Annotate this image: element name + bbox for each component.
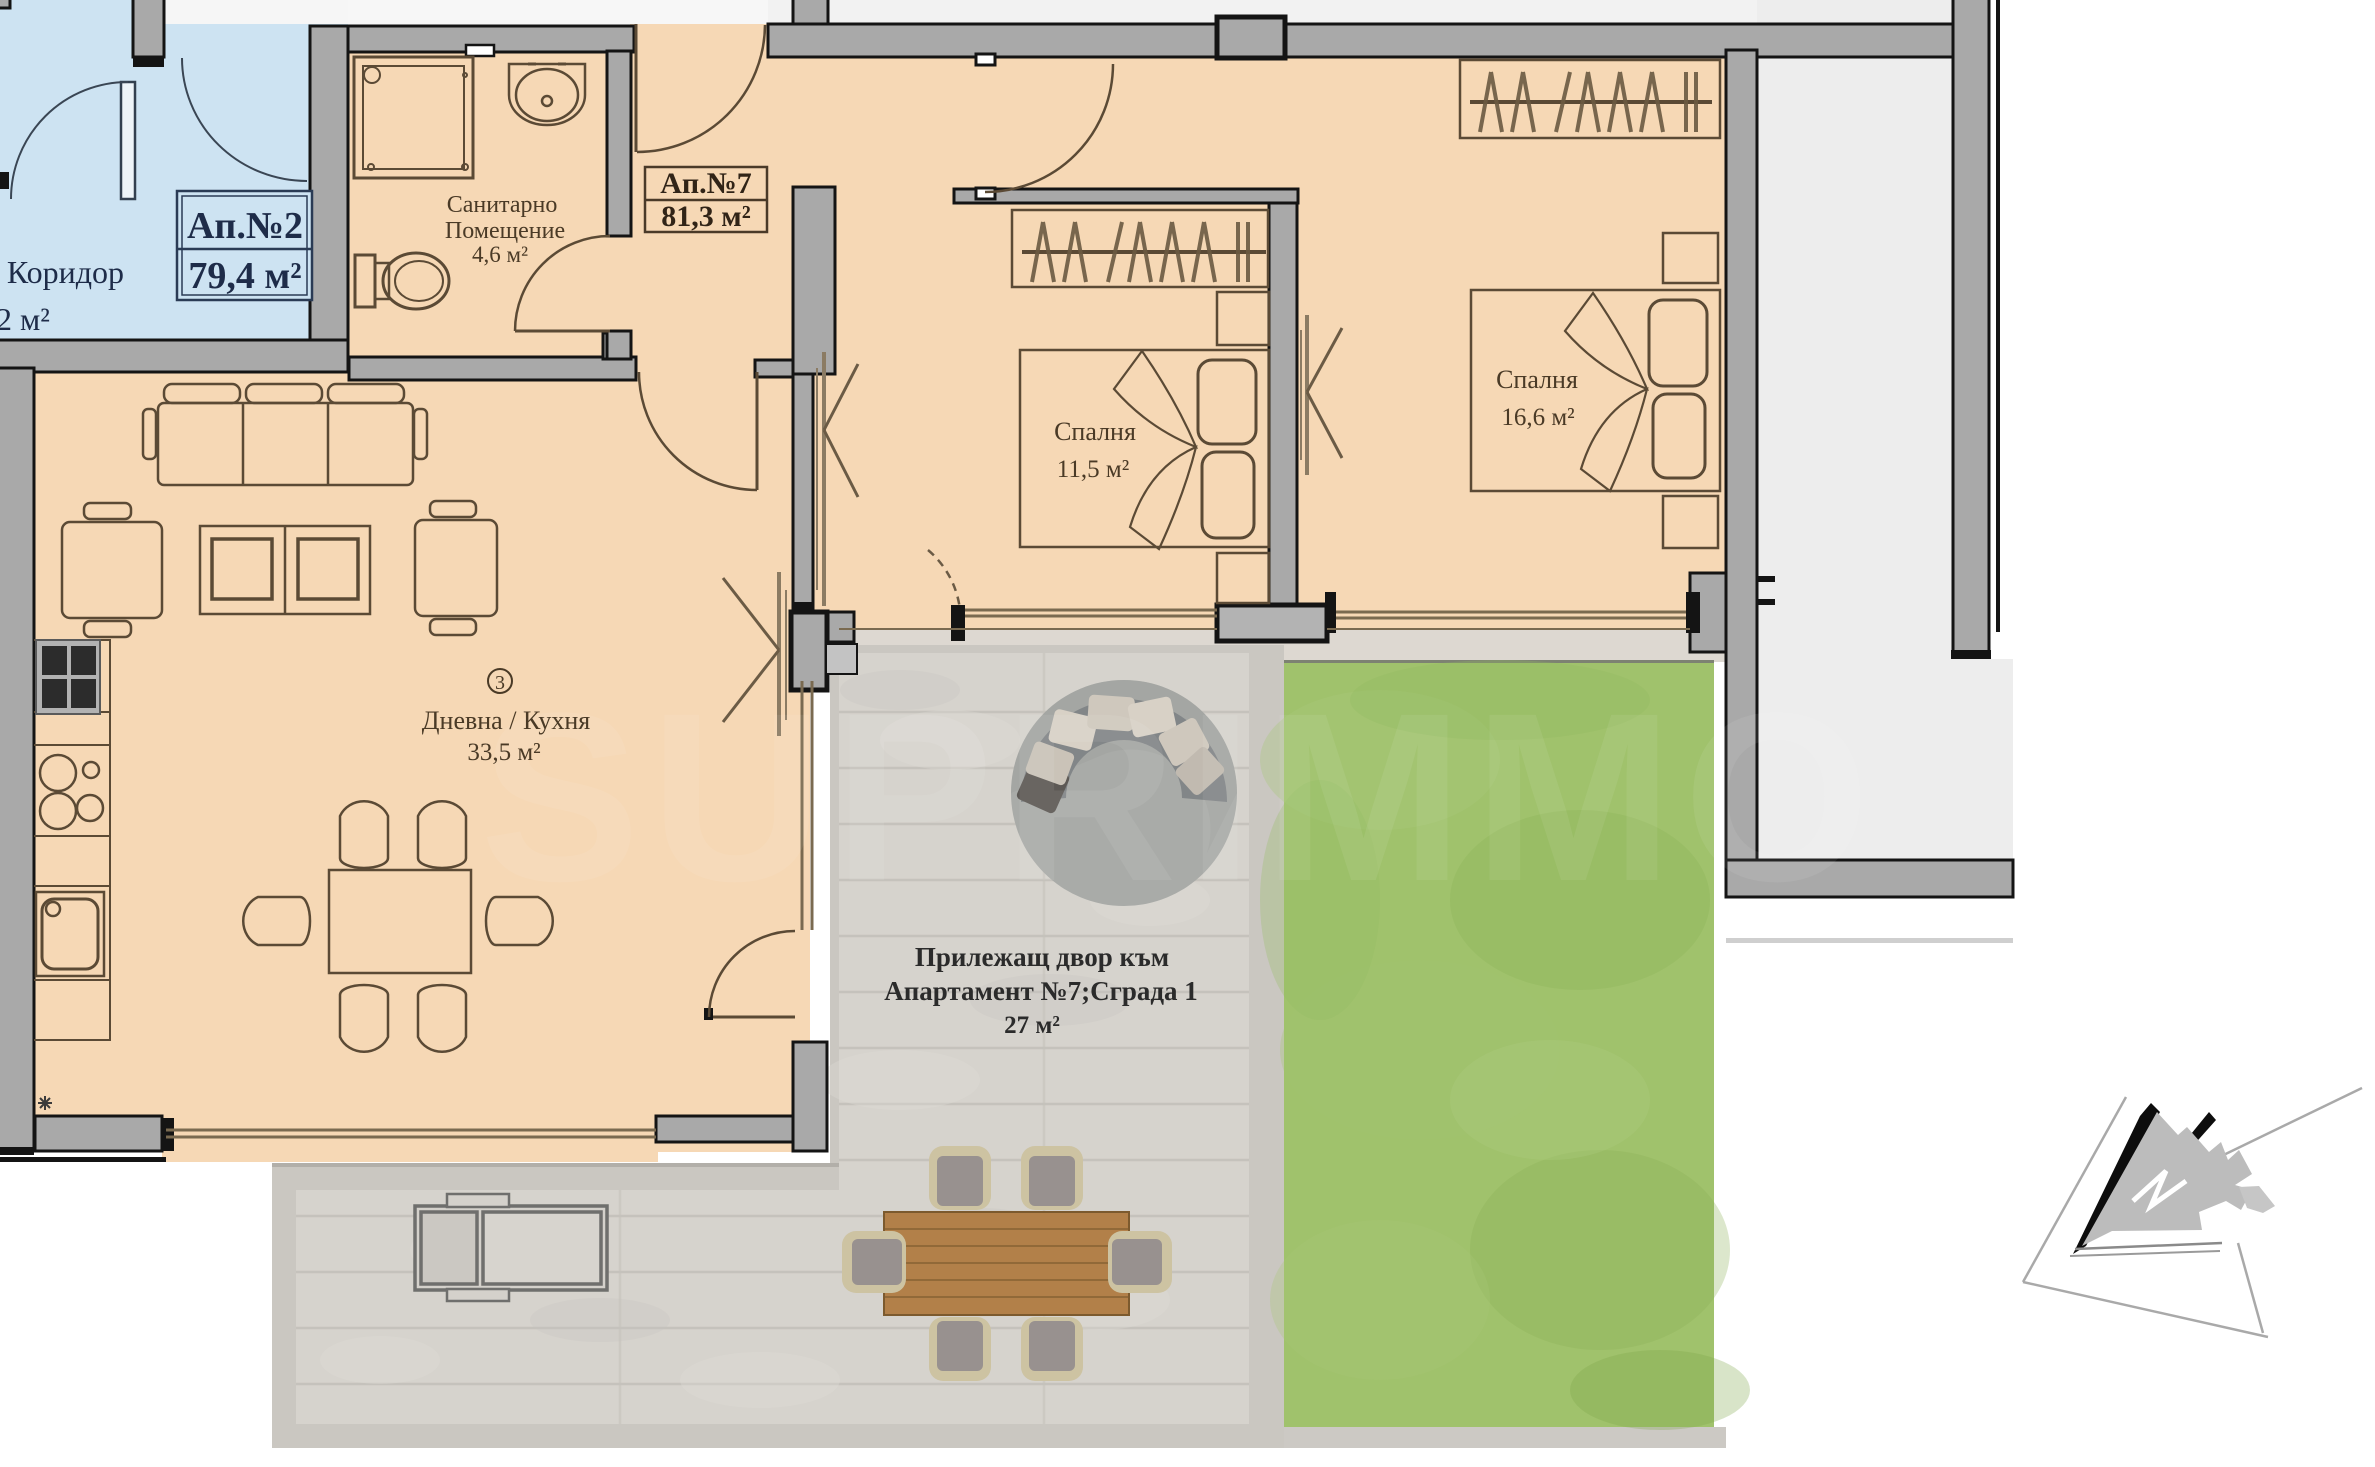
svg-text:Прилежащ двор към: Прилежащ двор към [915,942,1169,972]
svg-text:81,3 м²: 81,3 м² [661,200,750,233]
svg-text:33,5 м²: 33,5 м² [467,739,540,766]
svg-text:Санитарно: Санитарно [447,192,558,218]
svg-text:Апартамент №7;Сграда 1: Апартамент №7;Сграда 1 [884,976,1198,1006]
svg-text:Спалня: Спалня [1496,365,1578,394]
svg-text:3: 3 [495,672,505,694]
svg-text:/ Коридор: / Коридор [0,254,124,290]
svg-text:79,4 м²: 79,4 м² [188,255,301,297]
svg-text:Помещение: Помещение [445,218,565,244]
svg-text:Ап.№2: Ап.№2 [187,205,303,247]
svg-text:27 м²: 27 м² [1004,1012,1060,1039]
svg-text:,2 м²: ,2 м² [0,301,50,337]
svg-text:Ап.№7: Ап.№7 [660,167,752,200]
svg-text:SUPRIMMO: SUPRIMMO [480,663,1880,931]
svg-text:Дневна / Кухня: Дневна / Кухня [422,706,590,735]
svg-text:11,5 м²: 11,5 м² [1057,456,1129,483]
svg-text:16,6 м²: 16,6 м² [1501,404,1574,431]
svg-text:4,6 м²: 4,6 м² [472,242,528,267]
svg-text:Спалня: Спалня [1054,417,1136,446]
